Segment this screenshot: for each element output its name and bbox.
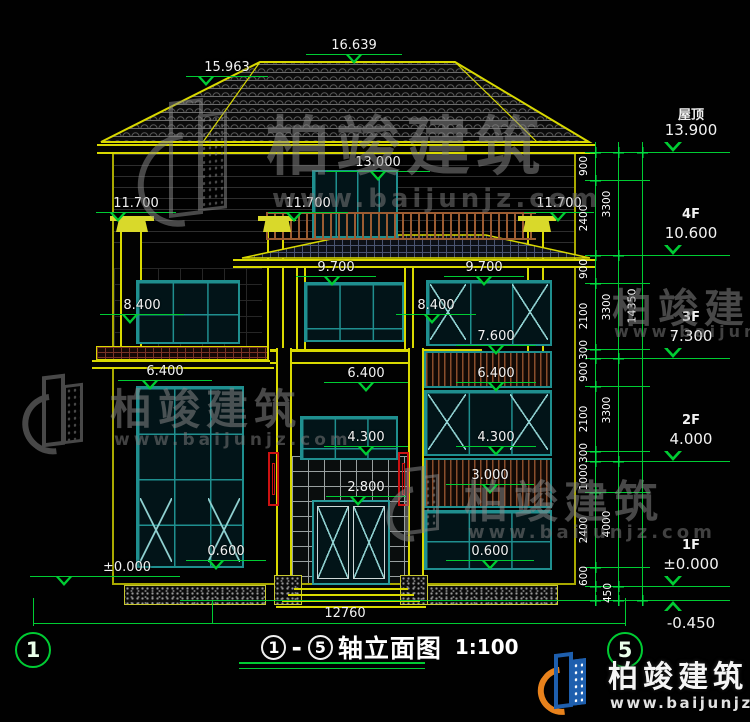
elev-6400-left-label: 6.400 (118, 364, 212, 379)
elev-3000: 3.000 (446, 468, 534, 494)
capital-right-body (523, 221, 551, 232)
elev-0600-left-label: 0.600 (186, 544, 266, 559)
elev-11700-mid-label: 11.700 (268, 196, 348, 211)
capital-mid-body (263, 221, 291, 232)
entrance-door (312, 500, 390, 585)
brand-url: www.baijunjz.com (610, 694, 750, 712)
level-roof-marker (664, 142, 682, 152)
elev-11700-left-label: 11.700 (96, 196, 176, 211)
elev-ridge-label: 16.639 (306, 38, 402, 53)
plinth-right (418, 585, 558, 605)
elev-9700-left: 9.700 (296, 260, 376, 286)
brand-name: 柏竣建筑 (608, 652, 748, 696)
elev-3000-label: 3.000 (446, 468, 534, 483)
elev-8400-left-label: 8.400 (100, 298, 184, 313)
secondary-fascia (233, 259, 595, 268)
elev-13000-label: 13.000 (326, 155, 430, 170)
title-underline (239, 662, 425, 669)
main-eave-band (97, 144, 595, 154)
wall-lamp-left (268, 452, 279, 506)
elev-2800-label: 2.800 (326, 480, 406, 495)
title-scale: 1:100 (455, 635, 519, 659)
level-4f-name: 4F (652, 207, 730, 222)
elev-hip-label: 15.963 (186, 60, 268, 75)
extension-line-right (625, 598, 626, 626)
level-4f-marker (664, 245, 682, 255)
level-ground-elev: -0.450 (652, 614, 730, 632)
elev-11700-left: 11.700 (96, 196, 176, 222)
elev-0000-left-label: ±0.000 (30, 560, 180, 575)
elev-9700-right-label: 9.700 (444, 260, 524, 275)
elev-4300-right: 4.300 (456, 430, 536, 456)
elev-0600-left: 0.600 (186, 544, 266, 570)
sash-x-bl (140, 498, 172, 562)
level-3f-marker (664, 348, 682, 358)
elev-0000-left: ±0.000 (30, 560, 180, 586)
elev-4300-mid-label: 4.300 (324, 430, 408, 445)
door-leaf-right-x (353, 506, 385, 579)
elevation-drawing-canvas: 16.639 15.963 13.000 11.700 11.700 11.70… (0, 0, 750, 722)
elev-hip: 15.963 (186, 60, 268, 86)
title-dash: - (291, 633, 302, 662)
elev-8400-mid: 8.400 (396, 298, 476, 324)
level-2f-marker (664, 451, 682, 461)
door-leaf-left-x (317, 506, 349, 579)
elev-6400-mid-label: 6.400 (324, 366, 408, 381)
level-2f-elev: 4.000 (652, 430, 730, 448)
extension-line-left (33, 598, 34, 626)
elev-4300-mid: 4.300 (324, 430, 408, 456)
elev-13000: 13.000 (326, 155, 430, 181)
elev-8400-mid-label: 8.400 (396, 298, 476, 313)
level-3f-name: 3F (652, 310, 730, 325)
elev-4300-right-label: 4.300 (456, 430, 536, 445)
ground-width-dim: 12760 (306, 606, 384, 621)
window-big-left (136, 386, 244, 568)
brand-logo: 柏竣建筑 www.baijunjz.com (538, 650, 750, 720)
elev-0600-right-label: 0.600 (446, 544, 534, 559)
watermark-logo-icon (10, 382, 95, 467)
axis-bubble-1: 1 (15, 632, 51, 668)
title-axis-to: 5 (308, 635, 333, 660)
elev-2800: 2.800 (326, 480, 406, 506)
extension-line-wall (212, 600, 213, 624)
level-1f-marker (664, 576, 682, 586)
level-ground-marker (664, 601, 682, 611)
elev-6400-mid: 6.400 (324, 366, 408, 392)
plinth-left (124, 585, 266, 605)
level-roof-elev: 13.900 (652, 121, 730, 139)
level-4f-elev: 10.600 (652, 224, 730, 242)
elev-6400-right: 6.400 (456, 366, 536, 392)
elev-6400-right-label: 6.400 (456, 366, 536, 381)
drawing-title: 1 - 5 轴立面图 1:100 (225, 629, 555, 665)
axis-1-number: 1 (26, 638, 41, 662)
level-1f-name: 1F (652, 538, 730, 553)
capital-left-body (116, 221, 148, 232)
elev-ridge: 16.639 (306, 38, 402, 64)
elev-9700-left-label: 9.700 (296, 260, 376, 275)
title-axis-from: 1 (261, 635, 286, 660)
dimension-total: 14350 (626, 289, 639, 324)
ground-dim-line (33, 623, 625, 624)
elev-6400-left: 6.400 (118, 364, 212, 390)
elev-0600-right: 0.600 (446, 544, 534, 570)
elev-7600-label: 7.600 (456, 329, 536, 344)
level-2f-name: 2F (652, 413, 730, 428)
left-balcony-roof (96, 346, 268, 360)
level-3f-elev: 7.300 (652, 327, 730, 345)
entrance-column-right (408, 348, 424, 585)
elev-8400-left: 8.400 (100, 298, 184, 324)
title-text: 轴立面图 (338, 629, 442, 665)
main-roof (95, 56, 595, 148)
elev-11700-mid: 11.700 (268, 196, 348, 222)
elev-9700-right: 9.700 (444, 260, 524, 286)
elev-7600: 7.600 (456, 329, 536, 355)
level-1f-elev: ±0.000 (652, 555, 730, 573)
window-3f-center (304, 282, 404, 342)
